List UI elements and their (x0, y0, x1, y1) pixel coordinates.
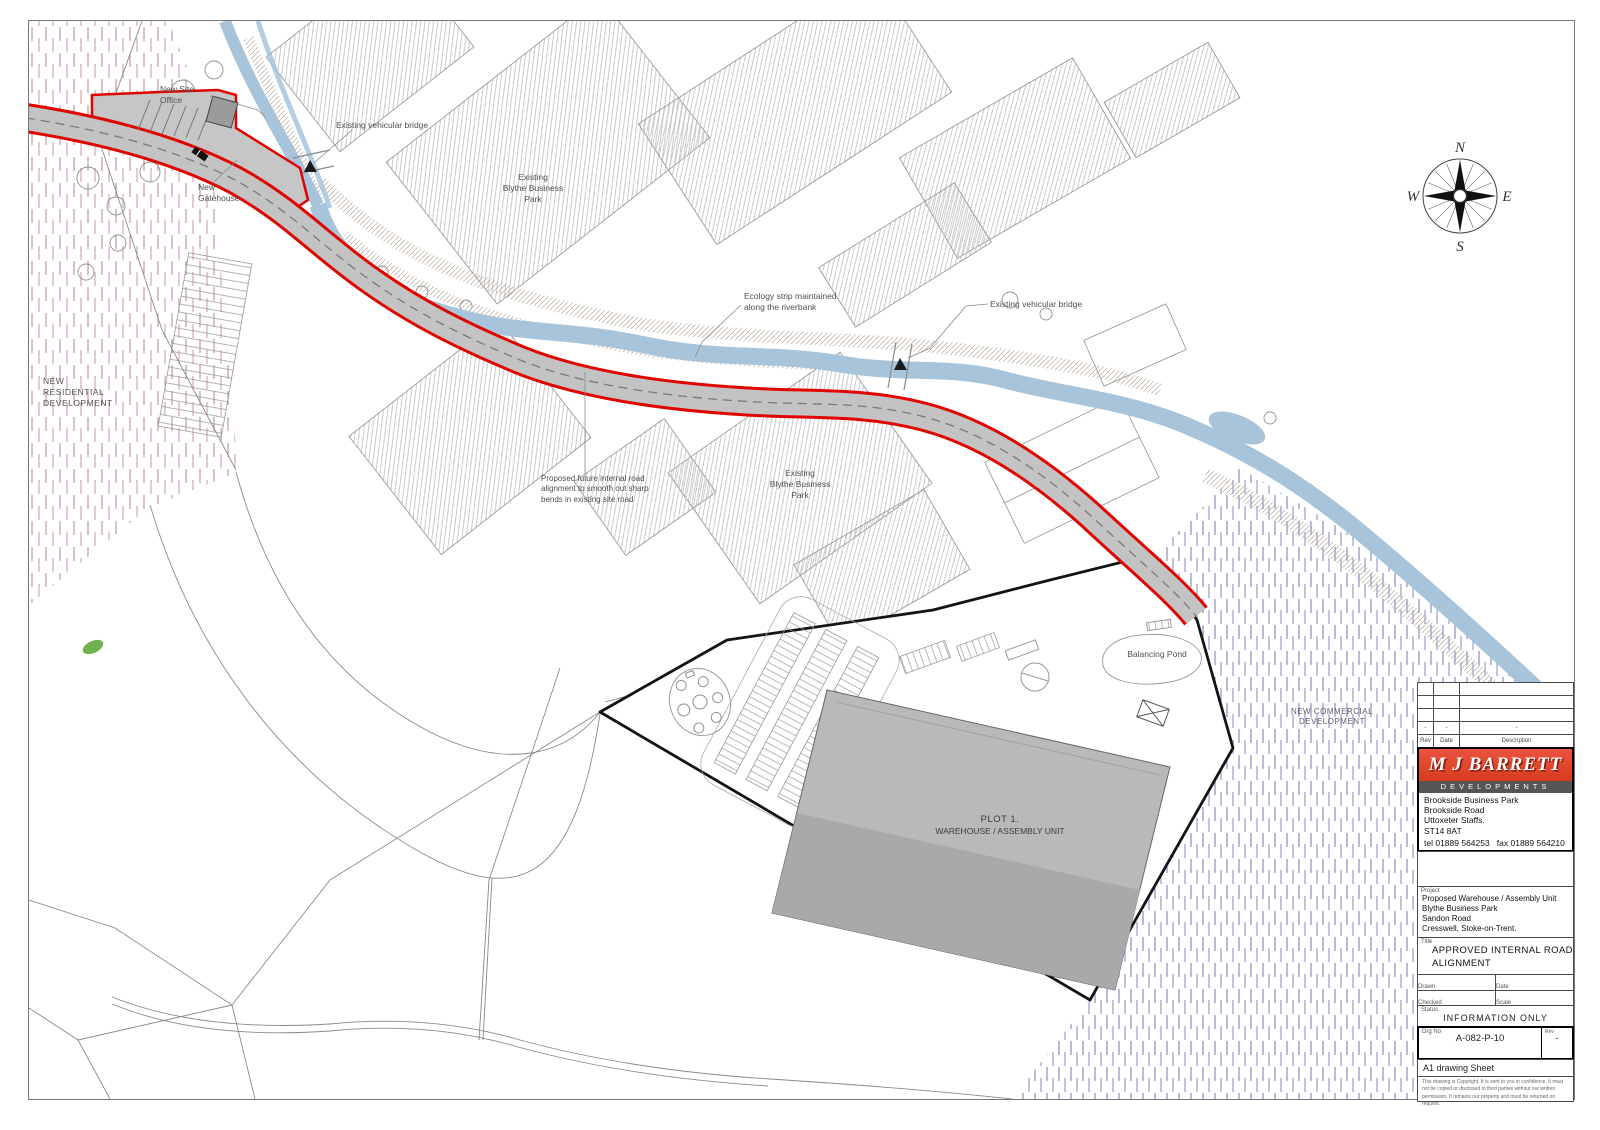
checked-scale-row: Checked - Scale 1:800 @A1 (1417, 990, 1574, 1006)
project-label: Project (1418, 887, 1573, 894)
title-label: Title (1418, 938, 1573, 945)
label-balancing-pond: Balancing Pond (1127, 649, 1187, 660)
title-block: - - - Rev Date Description M J BARRETT D… (1417, 683, 1574, 1102)
company-address: Brookside Business Park Brookside Road U… (1419, 793, 1572, 850)
drawing-sheet: N E S W New SiteOffice Existing vehicula… (0, 0, 1600, 1130)
revision-table: - - - Rev Date Description (1417, 682, 1574, 748)
site-plan-canvas: N E S W (0, 0, 1600, 1130)
label-new-gatehouse: NewGatehouse (198, 182, 240, 204)
spare-box (1417, 851, 1574, 887)
company-name: M J BARRETT (1429, 754, 1562, 776)
drawing-number-box: Drg No A-082-P-10 Rev - (1417, 1026, 1574, 1060)
label-blythe-park-1: ExistingBlythe BusinessPark (503, 172, 563, 205)
status-box: Status INFORMATION ONLY (1417, 1005, 1574, 1027)
label-plot1: PLOT 1. WAREHOUSE / ASSEMBLY UNIT (935, 814, 1064, 837)
revision-header-date: Date (1434, 735, 1460, 747)
label-existing-bridge-1: Existing vehicular bridge (336, 120, 428, 131)
label-existing-bridge-2: Existing vehicular bridge (990, 299, 1082, 310)
label-ecology-strip: Ecology strip maintainedalong the riverb… (744, 291, 837, 313)
revision-row-date: - (1434, 722, 1460, 735)
compass-south-letter: S (1456, 239, 1464, 255)
copyright-note: This drawing is Copyright. It is sent to… (1417, 1076, 1574, 1102)
company-logo-block: M J BARRETT DEVELOPMENTS Brookside Busin… (1417, 747, 1574, 852)
label-blythe-park-2: ExistingBlythe BusinessPark (770, 468, 830, 501)
compass-north-letter: N (1454, 140, 1466, 156)
drawing-title-line1: APPROVED INTERNAL ROAD (1418, 945, 1573, 958)
project-box: Project Proposed Warehouse / Assembly Un… (1417, 886, 1574, 938)
label-new-site-office: New SiteOffice (160, 84, 194, 106)
label-proposed-future-road: Proposed future internal roadalignment t… (541, 474, 649, 505)
revision-row-description: - (1460, 722, 1573, 735)
compass-east-letter: E (1501, 189, 1511, 205)
label-new-residential: NEWRESIDENTIALDEVELOPMENT (43, 376, 113, 409)
north-compass: N E S W (1407, 140, 1512, 255)
drawing-title-line2: ALIGNMENT (1418, 958, 1573, 971)
company-division: DEVELOPMENTS (1419, 781, 1572, 793)
revision-header-rev: Rev (1418, 735, 1434, 747)
revision-row-rev: - (1418, 722, 1434, 735)
compass-west-letter: W (1407, 189, 1421, 205)
company-logo-banner: M J BARRETT (1419, 749, 1572, 781)
label-new-commercial: NEW COMMERCIALDEVELOPMENT (1291, 707, 1373, 728)
drawn-date-row: Drawn MCH Date Sept 2018 (1417, 974, 1574, 991)
status-value: INFORMATION ONLY (1418, 1013, 1573, 1023)
status-label: Status (1418, 1006, 1573, 1013)
company-phone: tel 01889 564253 fax 01889 564210 (1424, 838, 1567, 848)
green-patch (80, 637, 105, 657)
drawing-title-box: Title APPROVED INTERNAL ROAD ALIGNMENT (1417, 937, 1574, 975)
revision-header-description: Description (1460, 735, 1573, 747)
sheet-note: A1 drawing Sheet (1417, 1059, 1574, 1077)
